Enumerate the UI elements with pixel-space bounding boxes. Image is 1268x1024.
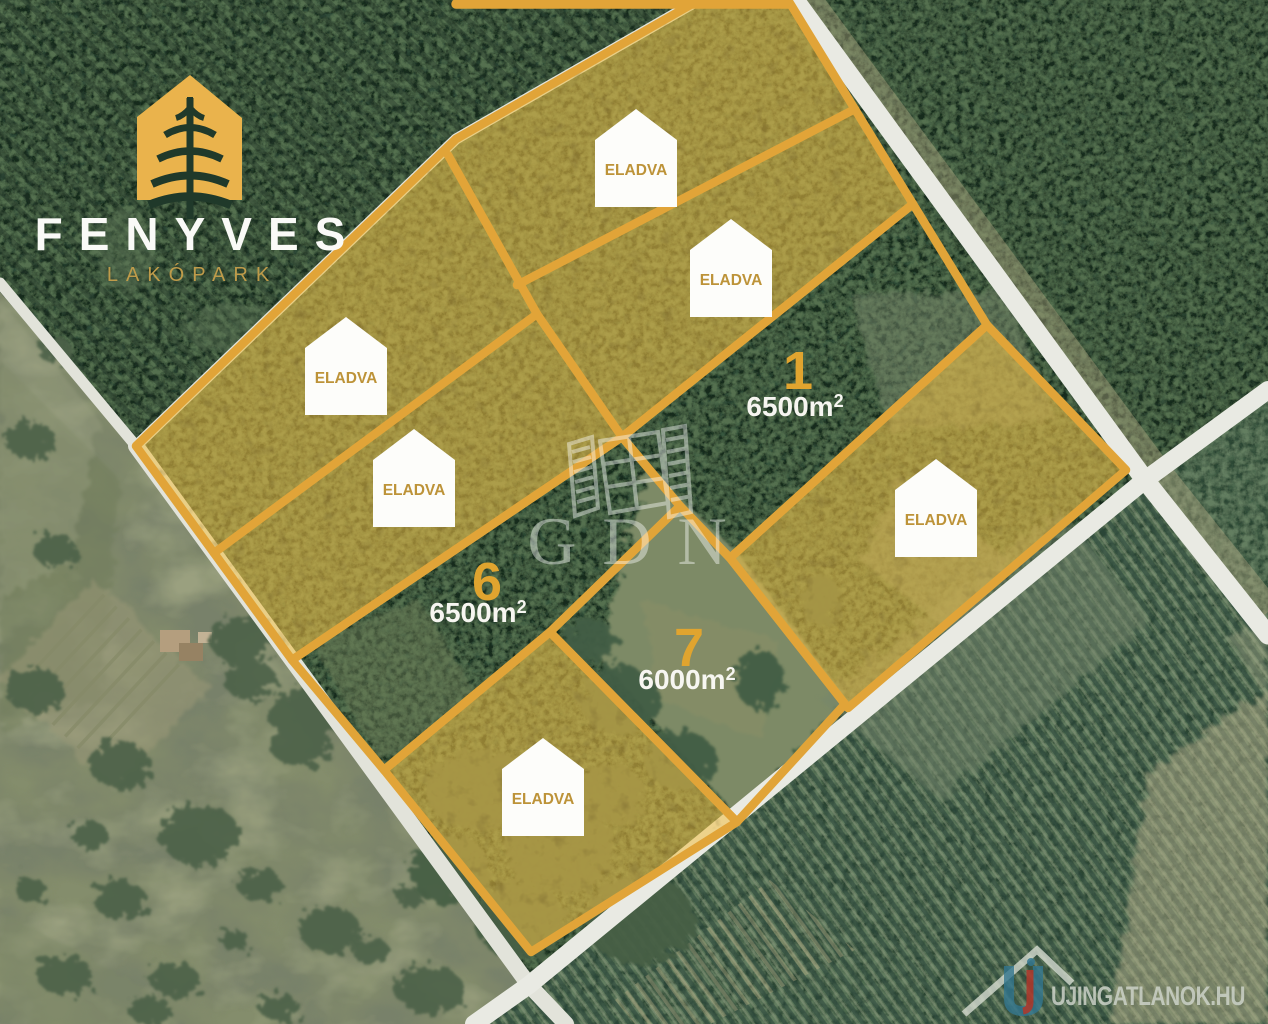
svg-text:ELADVA: ELADVA [383,482,446,499]
svg-text:ELADVA: ELADVA [905,512,968,529]
svg-text:ELADVA: ELADVA [315,370,378,387]
svg-text:6500m2: 6500m2 [746,391,843,422]
svg-text:6500m2: 6500m2 [429,597,526,628]
svg-text:6000m2: 6000m2 [638,664,735,695]
svg-text:LAKÓPARK: LAKÓPARK [107,263,277,286]
svg-text:UJINGATLANOK.HU: UJINGATLANOK.HU [1051,981,1245,1011]
svg-text:ELADVA: ELADVA [512,791,575,808]
svg-text:FENYVES: FENYVES [35,208,362,260]
svg-text:GDN: GDN [527,503,752,579]
svg-text:ELADVA: ELADVA [700,272,763,289]
svg-text:ELADVA: ELADVA [605,162,668,179]
